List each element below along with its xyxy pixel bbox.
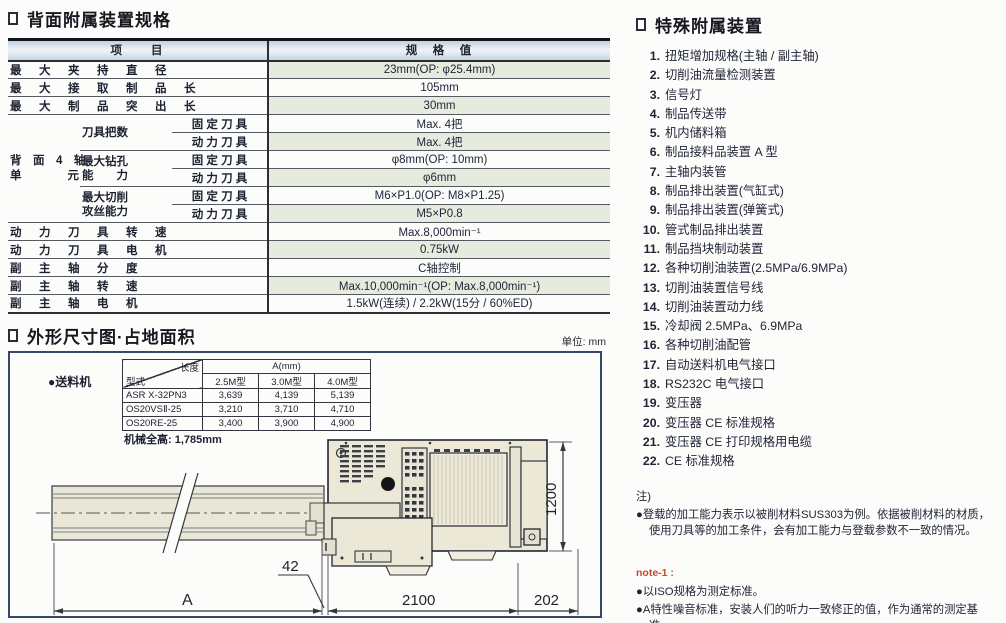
spec-row: 最大切削 攻丝能力 固 定 刀 具 M6×P1.0(OP: M8×P1.25) — [8, 187, 610, 205]
list-item: 6.制品接料品装置 A 型 — [636, 143, 1000, 162]
spec-value: Max.8,000min⁻¹ — [268, 223, 610, 241]
spec-row: 最大钻孔 能 力 固 定 刀 具 φ8mm(OP: 10mm) — [8, 151, 610, 169]
spec-label: 最 大 制 品 突 出 长 — [8, 97, 268, 115]
notes-head: 注) — [636, 489, 1000, 505]
feeder-diagonal-cell: 长度 型式 — [123, 359, 203, 388]
spec-subgroup-label: 最大钻孔 能 力 — [80, 151, 172, 187]
spec-row: 最 大 制 品 突 出 长 30mm — [8, 97, 610, 115]
list-item: 21.变压器 CE 打印规格用电缆 — [636, 433, 1000, 452]
spec-row: 最 大 接 取 制 品 长 105mm — [8, 79, 610, 97]
spec-label: 副 主 轴 转 速 — [8, 277, 268, 295]
dim-label-right: 202 — [534, 592, 559, 609]
feeder-row: OS20VSⅡ-25 3,210 3,710 4,710 — [123, 402, 371, 416]
spec-tool-type: 动 力 刀 具 — [172, 205, 268, 223]
spec-tool-type: 固 定 刀 具 — [172, 187, 268, 205]
note-bullet-1: ●以ISO规格为测定标准。 — [636, 584, 1000, 600]
list-item: 16.各种切削油配管 — [636, 336, 1000, 355]
spec-row: 副 主 轴 电 机 1.5kW(连续) / 2.2kW(15分 / 60%ED) — [8, 295, 610, 313]
spec-section-title: 背面附属装置规格 — [8, 6, 610, 31]
catalog-page: 背面附属装置规格 项 目 规 格 值 最 大 夹 持 直 径 23mm(OP: … — [0, 0, 1006, 623]
spec-value: Max. 4把 — [268, 115, 610, 133]
list-item: 7.主轴内装管 — [636, 163, 1000, 182]
spec-tool-type: 动 力 刀 具 — [172, 133, 268, 151]
spec-row: 副 主 轴 分 度 C轴控制 — [8, 259, 610, 277]
spec-header-item: 项 目 — [8, 40, 268, 61]
spec-header-row: 项 目 规 格 值 — [8, 40, 610, 61]
spec-group-label: 背 面 4 轴 单 元 — [8, 115, 80, 223]
group-label-line2: 单 元 — [10, 169, 78, 184]
spec-value: 0.75kW — [268, 241, 610, 259]
list-item: 13.切削油装置信号线 — [636, 279, 1000, 298]
spec-value: φ8mm(OP: 10mm) — [268, 151, 610, 169]
list-item: 8.制品排出装置(气缸式) — [636, 182, 1000, 201]
spec-label: 动 力 刀 具 电 机 — [8, 241, 268, 259]
spec-title-text: 背面附属装置规格 — [27, 6, 171, 31]
spec-value: Max.10,000min⁻¹(OP: Max.8,000min⁻¹) — [268, 277, 610, 295]
list-item: 18.RS232C 电气接口 — [636, 375, 1000, 394]
dim-label-depth: 1200 — [543, 482, 560, 515]
special-title-text: 特殊附属装置 — [655, 12, 763, 37]
spec-label: 副 主 轴 电 机 — [8, 295, 268, 313]
notes-block: 注) ●登载的加工能力表示以被削材料SUS303为例。依据被削材料的材质，使用刀… — [636, 489, 1000, 623]
feeder-label: ●送料机 — [48, 373, 91, 390]
dimension-title-text: 外形尺寸图·占地面积 — [27, 323, 196, 348]
spec-value: 1.5kW(连续) / 2.2kW(15分 / 60%ED) — [268, 295, 610, 313]
list-item: 1.扭矩增加规格(主轴 / 副主轴) — [636, 47, 1000, 66]
list-item: 9.制品排出装置(弹簧式) — [636, 201, 1000, 220]
section-bullet-icon — [636, 18, 646, 31]
list-item: 19.变压器 — [636, 394, 1000, 413]
unit-label: 单位: mm — [562, 334, 606, 349]
spec-label: 最 大 接 取 制 品 长 — [8, 79, 268, 97]
spec-tool-type: 固 定 刀 具 — [172, 151, 268, 169]
spec-value: φ6mm — [268, 169, 610, 187]
section-bullet-icon — [8, 12, 18, 25]
list-item: 20.变压器 CE 标准规格 — [636, 414, 1000, 433]
spec-value: 23mm(OP: φ25.4mm) — [268, 61, 610, 79]
spec-value: M6×P1.0(OP: M8×P1.25) — [268, 187, 610, 205]
spec-subgroup-label: 最大切削 攻丝能力 — [80, 187, 172, 223]
spec-value: 30mm — [268, 97, 610, 115]
special-options-list: 1.扭矩增加规格(主轴 / 副主轴) 2.切削油流量检测装置 3.信号灯 4.制… — [636, 47, 1000, 472]
dimension-drawing-box: ●送料机 长度 型式 A(mm) 2.5M型 3.0M型 4.0M型 ASR X… — [8, 351, 602, 618]
list-item: 14.切削油装置动力线 — [636, 298, 1000, 317]
spec-table: 项 目 规 格 值 最 大 夹 持 直 径 23mm(OP: φ25.4mm) … — [8, 38, 610, 314]
section-bullet-icon — [8, 329, 18, 342]
left-column: 背面附属装置规格 项 目 规 格 值 最 大 夹 持 直 径 23mm(OP: … — [8, 6, 610, 618]
note-bullet-2: ●A特性噪音标准，安装人们的听力一致修正的值，作为通常的测定基准。 — [636, 602, 1000, 623]
spec-tool-type: 动 力 刀 具 — [172, 169, 268, 187]
special-section-title: 特殊附属装置 — [636, 12, 1000, 37]
spec-row: 副 主 轴 转 速 Max.10,000min⁻¹(OP: Max.8,000m… — [8, 277, 610, 295]
spec-value: C轴控制 — [268, 259, 610, 277]
list-item: 15.冷却阀 2.5MPa、6.9MPa — [636, 317, 1000, 336]
list-item: 3.信号灯 — [636, 86, 1000, 105]
list-item: 4.制品传送带 — [636, 105, 1000, 124]
spec-row: 背 面 4 轴 单 元 刀具把数 固 定 刀 具 Max. 4把 — [8, 115, 610, 133]
spec-value: Max. 4把 — [268, 133, 610, 151]
feeder-table: 长度 型式 A(mm) 2.5M型 3.0M型 4.0M型 ASR X-32PN… — [122, 359, 371, 431]
feeder-span-header: A(mm) — [203, 359, 371, 373]
list-item: 5.机内储料箱 — [636, 124, 1000, 143]
spec-label: 最 大 夹 持 直 径 — [8, 61, 268, 79]
spec-label: 副 主 轴 分 度 — [8, 259, 268, 277]
note1-label: note-1 : — [636, 565, 1000, 581]
feeder-row: OS20RE-25 3,400 3,900 4,900 — [123, 416, 371, 430]
spec-row: 最 大 夹 持 直 径 23mm(OP: φ25.4mm) — [8, 61, 610, 79]
spec-label: 动 力 刀 具 转 速 — [8, 223, 268, 241]
dim-label-length: 2100 — [402, 592, 435, 609]
group-label-line1: 背 面 4 轴 — [10, 154, 78, 169]
spec-row: 动 力 刀 具 转 速 Max.8,000min⁻¹ — [8, 223, 610, 241]
dim-label-a: A — [182, 592, 193, 609]
dimension-section-title: 外形尺寸图·占地面积 — [8, 323, 610, 348]
feeder-col-header: 2.5M型 — [203, 373, 259, 388]
list-item: 22.CE 标准规格 — [636, 452, 1000, 471]
spec-value: 105mm — [268, 79, 610, 97]
spec-header-value: 规 格 值 — [268, 40, 610, 61]
list-item: 10.管式制品排出装置 — [636, 221, 1000, 240]
list-item: 12.各种切削油装置(2.5MPa/6.9MPa) — [636, 259, 1000, 278]
note-paragraph: ●登载的加工能力表示以被削材料SUS303为例。依据被削材料的材质，使用刀具等的… — [636, 507, 1000, 539]
feeder-col-header: 3.0M型 — [259, 373, 315, 388]
spec-tool-type: 固 定 刀 具 — [172, 115, 268, 133]
right-column: 特殊附属装置 1.扭矩增加规格(主轴 / 副主轴) 2.切削油流量检测装置 3.… — [636, 12, 1000, 623]
spec-value: M5×P0.8 — [268, 205, 610, 223]
spec-subgroup-label: 刀具把数 — [80, 115, 172, 151]
list-item: 11.制品挡块制动装置 — [636, 240, 1000, 259]
dimension-section-header: 外形尺寸图·占地面积 单位: mm — [8, 323, 610, 349]
list-item: 17.自动送料机电气接口 — [636, 356, 1000, 375]
spec-row: 动 力 刀 具 电 机 0.75kW — [8, 241, 610, 259]
feeder-row: ASR X-32PN3 3,639 4,139 5,139 — [123, 388, 371, 402]
machine-height-note: 机械全高: 1,785mm — [124, 431, 222, 447]
feeder-col-header: 4.0M型 — [315, 373, 371, 388]
list-item: 2.切削油流量检测装置 — [636, 66, 1000, 85]
dim-label-gap: 42 — [282, 558, 299, 575]
